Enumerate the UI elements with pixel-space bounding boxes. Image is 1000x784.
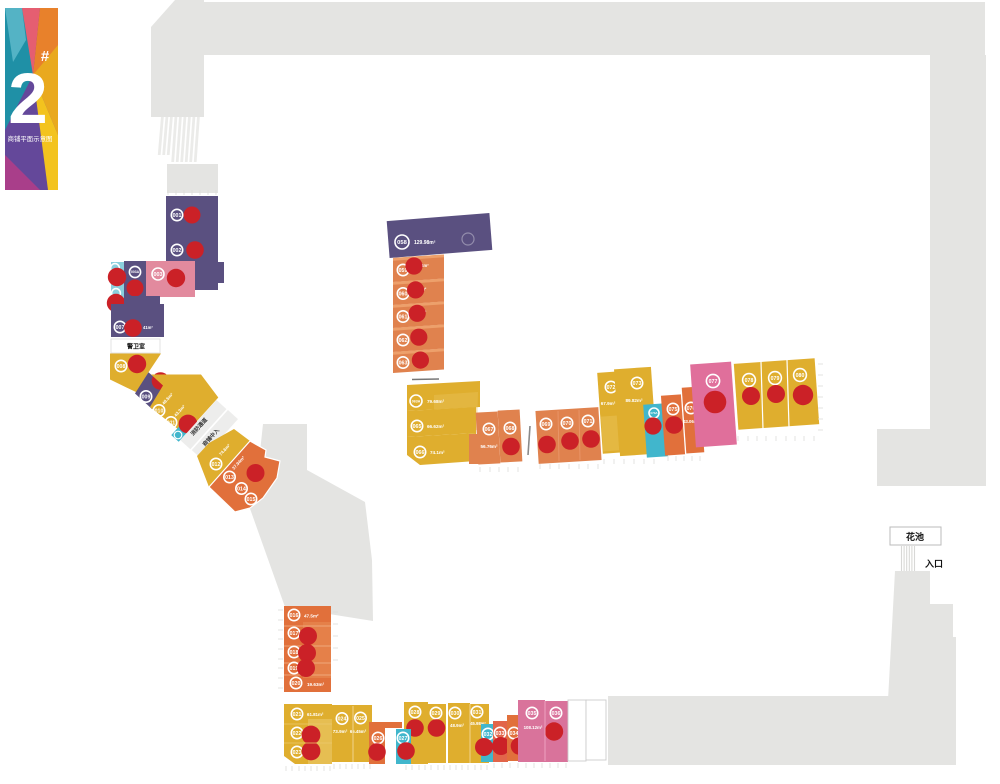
svg-text:003: 003 (154, 272, 163, 278)
svg-text:063A: 063A (412, 399, 421, 403)
svg-text:#: # (41, 48, 50, 65)
svg-text:018: 018 (290, 650, 299, 656)
svg-text:129.98m²: 129.98m² (414, 240, 436, 246)
svg-text:020: 020 (292, 681, 301, 687)
svg-text:031: 031 (473, 710, 482, 716)
svg-text:56.76m²: 56.76m² (480, 444, 498, 449)
svg-text:025: 025 (356, 716, 365, 722)
svg-text:61.81m²: 61.81m² (307, 712, 324, 717)
svg-text:075: 075 (669, 407, 678, 413)
svg-text:015: 015 (247, 497, 256, 503)
svg-text:警卫室: 警卫室 (126, 343, 145, 351)
svg-text:016: 016 (290, 613, 299, 619)
svg-text:073: 073 (633, 381, 642, 387)
svg-text:012: 012 (212, 462, 221, 468)
svg-text:026: 026 (374, 736, 383, 742)
svg-text:070: 070 (563, 421, 572, 427)
svg-text:021: 021 (293, 712, 302, 718)
svg-text:79.68m²: 79.68m² (427, 399, 445, 404)
svg-text:063: 063 (399, 360, 408, 366)
svg-text:2: 2 (8, 60, 48, 139)
svg-text:024: 024 (338, 716, 347, 722)
svg-text:079: 079 (771, 376, 780, 382)
svg-text:73.9m²: 73.9m² (333, 729, 348, 734)
svg-text:入口: 入口 (924, 559, 943, 569)
svg-text:007: 007 (116, 325, 125, 331)
svg-text:069: 069 (542, 422, 551, 428)
svg-text:027: 027 (399, 736, 408, 742)
svg-text:89.82m²: 89.82m² (625, 398, 643, 403)
svg-text:061: 061 (399, 314, 408, 320)
svg-text:009: 009 (142, 394, 151, 400)
svg-text:花池: 花池 (906, 531, 924, 542)
svg-text:066: 066 (416, 450, 425, 456)
svg-text:060: 060 (399, 291, 408, 297)
svg-text:67.9m²: 67.9m² (601, 401, 616, 406)
svg-text:48.9m²: 48.9m² (450, 723, 464, 728)
svg-text:033: 033 (496, 731, 505, 737)
svg-text:商铺平面示意图: 商铺平面示意图 (8, 134, 53, 143)
svg-text:058: 058 (397, 240, 407, 246)
svg-text:008: 008 (117, 364, 126, 370)
svg-text:19.63m²: 19.63m² (307, 682, 325, 687)
svg-text:035: 035 (528, 711, 537, 717)
svg-text:41m²: 41m² (143, 325, 153, 330)
svg-text:080: 080 (796, 373, 805, 379)
svg-text:013: 013 (225, 475, 234, 481)
svg-text:47.5m²: 47.5m² (304, 614, 319, 619)
svg-text:029: 029 (432, 711, 441, 717)
svg-text:014: 014 (237, 486, 246, 492)
svg-text:078: 078 (745, 378, 754, 384)
svg-text:036: 036 (552, 711, 561, 717)
svg-text:028: 028 (411, 710, 420, 716)
svg-text:74.1m²: 74.1m² (430, 450, 445, 455)
svg-text:003A: 003A (131, 270, 140, 274)
svg-text:022: 022 (293, 731, 302, 737)
svg-text:073A: 073A (650, 411, 658, 415)
svg-text:071: 071 (584, 419, 593, 425)
svg-text:072: 072 (607, 385, 616, 391)
svg-text:065: 065 (413, 424, 422, 430)
svg-text:011: 011 (167, 420, 175, 426)
svg-text:108.12m²: 108.12m² (524, 725, 543, 730)
svg-text:030: 030 (451, 711, 460, 717)
svg-text:032: 032 (484, 732, 493, 738)
svg-text:062: 062 (399, 338, 408, 344)
svg-text:023: 023 (293, 750, 302, 756)
svg-text:067: 067 (485, 427, 494, 433)
svg-text:65.45m²: 65.45m² (350, 729, 367, 734)
svg-text:010: 010 (155, 408, 164, 414)
svg-text:077: 077 (709, 379, 718, 385)
svg-text:034: 034 (510, 731, 519, 737)
svg-text:068: 068 (506, 426, 515, 432)
svg-text:001: 001 (173, 213, 182, 219)
svg-text:002: 002 (173, 248, 182, 254)
svg-text:017: 017 (290, 631, 299, 637)
svg-text:66.62m²: 66.62m² (427, 424, 445, 429)
